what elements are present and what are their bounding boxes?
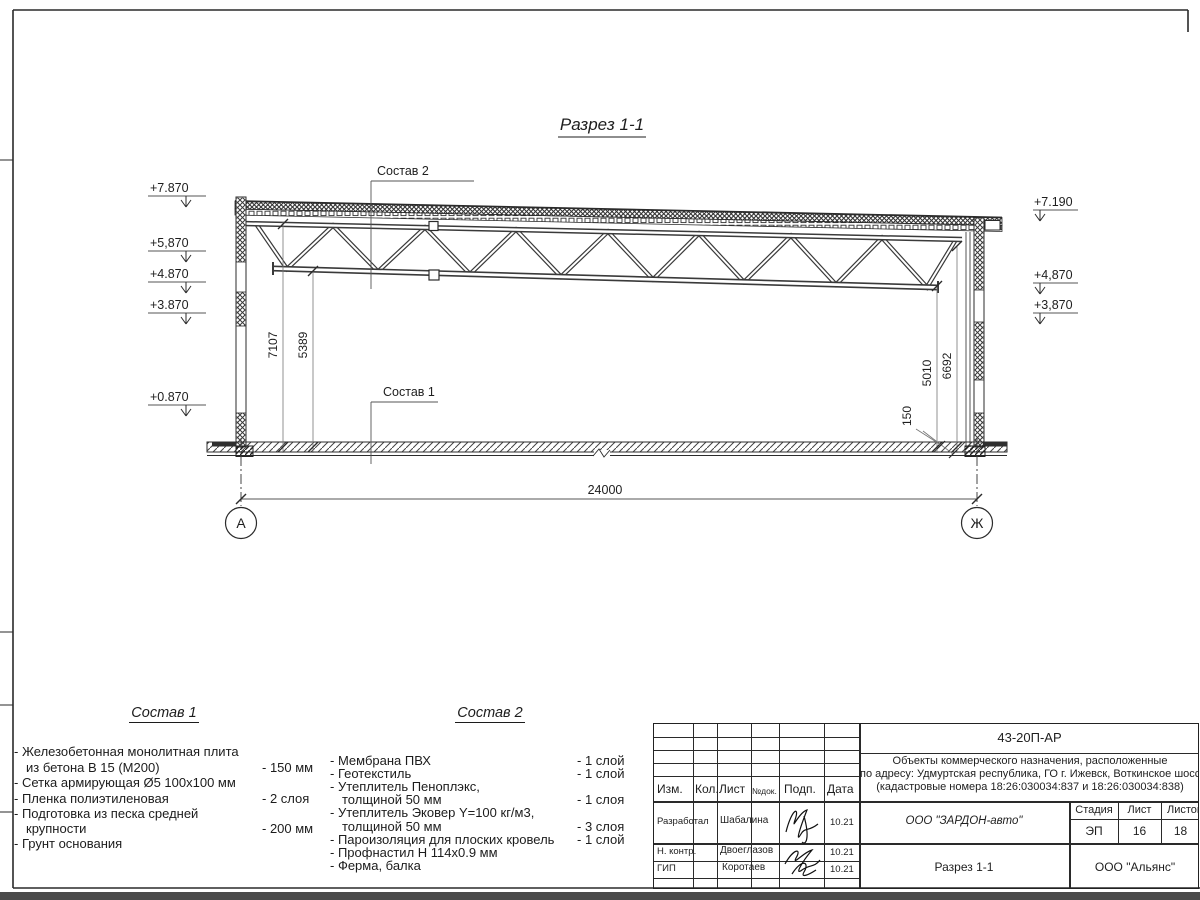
tb-header-izm: Изм. <box>657 782 683 796</box>
callout-sostav1-label: Состав 1 <box>383 385 435 399</box>
list-item: крупности- 200 мм <box>14 821 341 836</box>
span-dimension: 24000 <box>236 483 982 504</box>
elev-right-1: +4,870 <box>1034 268 1073 282</box>
tb-name-1: Двоеглазов <box>720 845 773 856</box>
tb-sheets-value: 18 <box>1161 824 1199 838</box>
signature-1 <box>786 810 818 843</box>
tb-header-data: Дата <box>827 782 854 796</box>
tb-role-0: Разработал <box>657 816 709 827</box>
tb-header-podp: Подп. <box>784 782 816 796</box>
elev-left-3: +3.870 <box>150 298 189 312</box>
right-wall <box>966 218 984 447</box>
dim-5389: 5389 <box>296 331 310 358</box>
list-item: из бетона В 15 (М200)- 150 мм <box>14 760 341 775</box>
elev-left-1: +5,870 <box>150 236 189 250</box>
tb-role-2: ГИП <box>657 863 676 874</box>
tb-sheet-value: 16 <box>1118 824 1161 838</box>
list2-title: Состав 2 <box>330 706 650 721</box>
tb-section-name: Разрез 1-1 <box>859 860 1069 874</box>
elev-left-4: +0.870 <box>150 390 189 404</box>
tb-date-1: 10.21 <box>830 847 854 858</box>
signatures <box>780 802 824 886</box>
section-title: Разрез 1-1 <box>560 115 644 134</box>
list-item: - Утеплитель Эковер Y=100 кг/м3, <box>330 805 645 820</box>
tb-date-0: 10.21 <box>830 817 854 828</box>
elev-right-2: +3,870 <box>1034 298 1073 312</box>
list1-title: Состав 1 <box>14 706 314 721</box>
drawing-sheet: Разрез 1-1 <box>0 0 1200 900</box>
tb-role-1: Н. контр. <box>657 846 696 857</box>
floor-slab <box>207 442 1007 460</box>
tb-sheet-label: Лист <box>1118 804 1161 816</box>
tb-org: ООО "Альянс" <box>1070 860 1199 874</box>
tb-stage-value: ЭП <box>1070 824 1118 838</box>
tb-name-0: Шабалина <box>720 815 768 826</box>
tb-sheets-label: Листов <box>1167 804 1199 816</box>
tb-project-line3: (кадастровые номера 18:26:030034:837 и 1… <box>860 781 1199 793</box>
tb-company: ООО "ЗАРДОН-авто" <box>859 815 1069 827</box>
elevation-marks-right: +7.190 +4,870 +3,870 <box>1033 195 1078 324</box>
list-item: - Грунт основания <box>14 836 329 851</box>
tb-header-list: Лист <box>719 782 745 796</box>
callout-sostav2-label: Состав 2 <box>377 164 429 178</box>
roof-end-cap <box>985 221 1000 231</box>
elev-left-2: +4.870 <box>150 267 189 281</box>
bottom-bar <box>0 892 1200 900</box>
span-dim-text: 24000 <box>588 483 623 497</box>
dim-6692: 6692 <box>940 352 954 379</box>
tb-header-ndok: №док. <box>752 786 777 796</box>
left-wall <box>236 197 246 447</box>
axis-label-left: А <box>236 515 246 531</box>
list-item: - Подготовка из песка средней <box>14 806 329 821</box>
dim-5010: 5010 <box>920 359 934 386</box>
truss <box>243 222 962 294</box>
tb-project-line1: Объекты коммерческого назначения, распол… <box>860 755 1199 767</box>
title-block: Изм. Кол. Лист №док. Подп. Дата Разработ… <box>653 723 1199 889</box>
tb-name-2: Коротаев <box>722 862 765 873</box>
tb-stage-label: Стадия <box>1070 804 1118 816</box>
dim-150: 150 <box>900 406 914 426</box>
tb-project-line2: по адресу: Удмуртская республика, ГО г. … <box>860 768 1199 780</box>
signature-2 <box>785 850 820 876</box>
tb-date-2: 10.21 <box>830 864 854 875</box>
dim-7107: 7107 <box>266 331 280 358</box>
height-dimensions <box>278 219 962 453</box>
list-item: - Сетка армирующая Ø5 100х100 мм <box>14 775 329 790</box>
elev-left-0: +7.870 <box>150 181 189 195</box>
tb-doc-number: 43-20П-АР <box>859 730 1199 745</box>
axis-label-right: Ж <box>971 515 984 531</box>
elevation-marks-left: +7.870 +5,870 +4.870 +3.870 +0.870 <box>148 181 206 416</box>
elev-right-0: +7.190 <box>1034 195 1073 209</box>
list-item: - Пленка полиэтиленовая- 2 слоя <box>14 791 329 806</box>
tb-header-kol: Кол. <box>695 782 719 796</box>
list-item: - Ферма, балка <box>330 858 645 873</box>
list-item: - Железобетонная монолитная плита <box>14 744 329 759</box>
